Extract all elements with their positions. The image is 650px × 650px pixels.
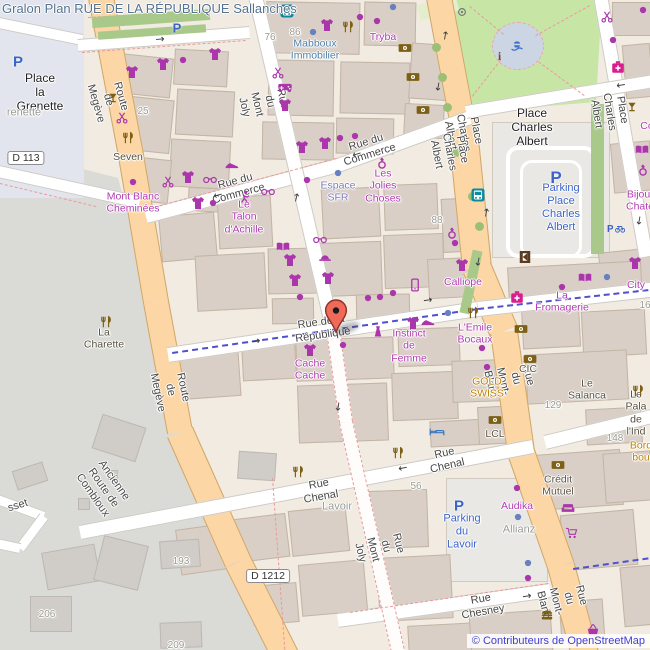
poi-label: Calliope bbox=[444, 276, 482, 288]
poi-label: Tryba bbox=[370, 31, 396, 43]
shop-dot-icon bbox=[340, 342, 347, 349]
svg-text:i: i bbox=[498, 51, 501, 62]
monument-icon bbox=[458, 8, 467, 17]
sports-icon bbox=[240, 190, 251, 204]
bank-icon bbox=[551, 461, 565, 470]
shop-dot-icon bbox=[337, 135, 344, 142]
poi-label: L'Emile Bocaux bbox=[457, 322, 492, 347]
shoe-shop-icon bbox=[225, 161, 239, 169]
road-ref-badge: D 1212 bbox=[246, 569, 290, 583]
clothing-shop-icon bbox=[303, 343, 318, 357]
poi-label: Parking du Lavoir bbox=[443, 513, 480, 552]
street-label: Place Charles Albert bbox=[426, 130, 471, 175]
building bbox=[195, 252, 268, 312]
clothing-shop-icon bbox=[455, 258, 470, 272]
restaurant-icon bbox=[632, 385, 645, 398]
house-number: 148 bbox=[607, 433, 624, 445]
clothing-shop-icon bbox=[208, 47, 223, 61]
poi-dot-icon bbox=[515, 514, 522, 521]
place-label: Allianz bbox=[503, 524, 535, 537]
shop-dot-icon bbox=[352, 133, 359, 140]
restaurant-icon bbox=[100, 316, 113, 329]
furniture-icon bbox=[561, 504, 575, 513]
place-label: renette bbox=[7, 107, 41, 120]
parking-icon: P bbox=[173, 21, 182, 36]
road-ref-badge: D 113 bbox=[7, 151, 44, 165]
poi-label: GOLD SWISS bbox=[470, 376, 504, 401]
poi-label: CIC bbox=[519, 363, 537, 375]
poi-label: City bbox=[627, 279, 645, 291]
house-number: 86 bbox=[289, 27, 300, 39]
house-number: 16 bbox=[639, 300, 650, 312]
jewelry-icon bbox=[377, 157, 387, 170]
shoe-shop-icon bbox=[421, 318, 435, 326]
house-number: 76 bbox=[264, 32, 275, 44]
building bbox=[391, 371, 459, 421]
poi-label: Parking Place Charles Albert bbox=[542, 182, 580, 234]
poi-label: Audika bbox=[501, 500, 533, 512]
optician-icon bbox=[203, 176, 218, 184]
poi-dot-icon bbox=[525, 560, 532, 567]
poi-label: Bord bou bbox=[630, 440, 650, 465]
clothing-shop-icon bbox=[295, 140, 310, 154]
jewelry-icon bbox=[638, 164, 648, 177]
map-canvas[interactable]: D 113D 1212Route de MegèveRoute de Megèv… bbox=[0, 0, 650, 650]
tree-icon bbox=[475, 222, 484, 231]
hairdresser-icon bbox=[162, 176, 175, 189]
clothing-shop-icon bbox=[278, 98, 293, 112]
oneway-arrow-icon: → bbox=[155, 33, 165, 47]
place-label: Lavoir bbox=[322, 501, 352, 514]
house-number: 25 bbox=[137, 106, 148, 118]
restaurant-icon bbox=[122, 132, 135, 145]
bank-icon bbox=[488, 416, 502, 425]
oneway-arrow-icon: ← bbox=[615, 79, 626, 93]
bicycle-parking-icon: P bbox=[607, 223, 625, 234]
bank-icon bbox=[398, 44, 412, 53]
building bbox=[237, 451, 277, 482]
bar-icon bbox=[107, 92, 119, 104]
bank-icon bbox=[416, 106, 430, 115]
game-shop-icon bbox=[278, 83, 293, 93]
poi-label: La Fromagerie bbox=[535, 290, 589, 315]
shop-dot-icon bbox=[374, 18, 381, 25]
shop-dot-icon bbox=[377, 294, 384, 301]
building bbox=[298, 559, 368, 617]
clothing-shop-icon bbox=[181, 170, 196, 184]
street-label: Route de Megève bbox=[147, 367, 193, 413]
clothing-shop-icon bbox=[628, 256, 643, 270]
parking-icon: P bbox=[13, 54, 23, 71]
location-marker-icon bbox=[323, 299, 349, 333]
clothing-shop-icon bbox=[156, 57, 171, 71]
poi-label: Instinct de Femme bbox=[391, 327, 427, 364]
optician-icon bbox=[313, 236, 328, 244]
parking-icon: P bbox=[550, 168, 561, 188]
tree-icon bbox=[443, 103, 452, 112]
clothing-shop-icon bbox=[320, 18, 335, 32]
bank-icon bbox=[523, 355, 537, 364]
poi-dot-icon bbox=[310, 29, 317, 36]
street-label: Place Charles Albert bbox=[587, 90, 631, 134]
shop-dot-icon bbox=[210, 200, 217, 207]
restaurant-icon bbox=[292, 466, 305, 479]
hotel-icon bbox=[430, 427, 445, 437]
shop-dot-icon bbox=[640, 7, 647, 14]
shop-dot-icon bbox=[365, 295, 372, 302]
poi-label: Co bbox=[640, 120, 650, 132]
clothing-shop-icon bbox=[406, 316, 421, 330]
shop-dot-icon bbox=[479, 345, 486, 352]
shop-dot-icon bbox=[610, 37, 617, 44]
clothing-shop-icon bbox=[321, 271, 336, 285]
house-number: 129 bbox=[545, 400, 562, 412]
bank-icon bbox=[406, 73, 420, 82]
shop-dot-icon bbox=[304, 177, 311, 184]
bookshop-icon bbox=[578, 273, 592, 283]
oneway-arrow-icon: ↓ bbox=[333, 401, 344, 415]
shop-dot-icon bbox=[390, 290, 397, 297]
clothing-shop-icon bbox=[283, 253, 298, 267]
osm-attribution-link[interactable]: © Contributeurs de OpenStreetMap bbox=[467, 634, 650, 648]
clothing-shop-icon bbox=[288, 273, 303, 287]
pharmacy-icon bbox=[612, 61, 625, 74]
hat-shop-icon bbox=[319, 254, 332, 262]
hairdresser-icon bbox=[116, 112, 129, 125]
house-number: 193 bbox=[173, 556, 190, 568]
optician-icon bbox=[261, 188, 276, 196]
bookshop-icon bbox=[635, 145, 649, 155]
parking-icon: P bbox=[454, 498, 464, 515]
poi-label: Seven bbox=[113, 151, 143, 163]
clothing-shop-icon bbox=[318, 136, 333, 150]
oneway-arrow-icon: → bbox=[521, 590, 532, 604]
bus-stop-icon bbox=[472, 189, 485, 202]
pharmacy-icon bbox=[511, 291, 524, 304]
clothing-shop-icon bbox=[125, 65, 140, 79]
poi-label: Le Talon d'Achille bbox=[225, 198, 264, 235]
place-label: Place Charles Albert bbox=[511, 106, 552, 148]
poi-label: Cache Cache bbox=[295, 358, 325, 383]
clothing-shop-icon bbox=[191, 196, 206, 210]
hairdresser-icon bbox=[272, 67, 285, 80]
poi-dot-icon bbox=[604, 274, 611, 281]
poi-label: Le Salanca bbox=[568, 378, 606, 403]
phone-shop-icon bbox=[411, 279, 419, 292]
bank-icon bbox=[514, 325, 528, 334]
restaurant-icon bbox=[392, 447, 405, 460]
oneway-arrow-icon: → bbox=[423, 294, 434, 308]
bookshop-icon bbox=[276, 242, 290, 252]
house-number: 56 bbox=[410, 481, 421, 493]
poi-dot-icon bbox=[445, 310, 452, 317]
hairdresser-icon bbox=[601, 11, 614, 24]
building bbox=[175, 89, 235, 138]
house-number: 206 bbox=[39, 609, 56, 621]
information-icon: i bbox=[498, 50, 504, 62]
shop-dot-icon bbox=[297, 294, 304, 301]
poi-dot-icon bbox=[390, 4, 397, 11]
tree-icon bbox=[432, 43, 441, 52]
shop-dot-icon bbox=[357, 14, 364, 21]
fountain-icon bbox=[510, 41, 524, 52]
dress-shop-icon bbox=[374, 326, 383, 339]
building bbox=[340, 61, 411, 114]
jewelry-icon bbox=[447, 227, 457, 240]
shop-dot-icon bbox=[484, 364, 491, 371]
house-number: 88 bbox=[431, 215, 442, 227]
shop-dot-icon bbox=[559, 284, 566, 291]
shop-dot-icon bbox=[452, 240, 459, 247]
poi-label: Espace SFR bbox=[320, 180, 355, 205]
house-number: 209 bbox=[168, 640, 185, 650]
fast-food-icon bbox=[541, 610, 554, 621]
oneway-arrow-icon: → bbox=[251, 335, 262, 349]
oneway-arrow-icon: ↑ bbox=[480, 207, 492, 221]
shop-dot-icon bbox=[525, 575, 532, 582]
poi-label: Mabboux Immobilier bbox=[291, 38, 339, 63]
poi-label: LCL bbox=[485, 428, 504, 440]
poi-label: Crédit Mutuel bbox=[542, 474, 574, 499]
poi-label: Bijout Chate bbox=[626, 189, 650, 214]
bar-icon bbox=[626, 101, 638, 113]
svg-text:P: P bbox=[607, 224, 614, 234]
poi-label: Mont Blanc Cheminées bbox=[106, 191, 159, 216]
poi-dot-icon bbox=[335, 170, 342, 177]
shop-door-icon bbox=[520, 251, 531, 263]
building bbox=[619, 565, 650, 628]
poi-label: Les Jolies Choses bbox=[365, 167, 401, 204]
page-title: Gralon Plan RUE DE LA RÉPUBLIQUE Sallanc… bbox=[2, 1, 297, 16]
street-label: Rue Chenal bbox=[426, 443, 466, 476]
poi-label: La Charette bbox=[84, 327, 124, 352]
shop-dot-icon bbox=[514, 485, 521, 492]
shop-dot-icon bbox=[180, 57, 187, 64]
restaurant-icon bbox=[342, 21, 355, 34]
shop-dot-icon bbox=[130, 179, 137, 186]
oneway-arrow-icon: ← bbox=[397, 462, 408, 476]
restaurant-icon bbox=[467, 307, 480, 320]
shopping-cart-icon bbox=[566, 527, 579, 539]
